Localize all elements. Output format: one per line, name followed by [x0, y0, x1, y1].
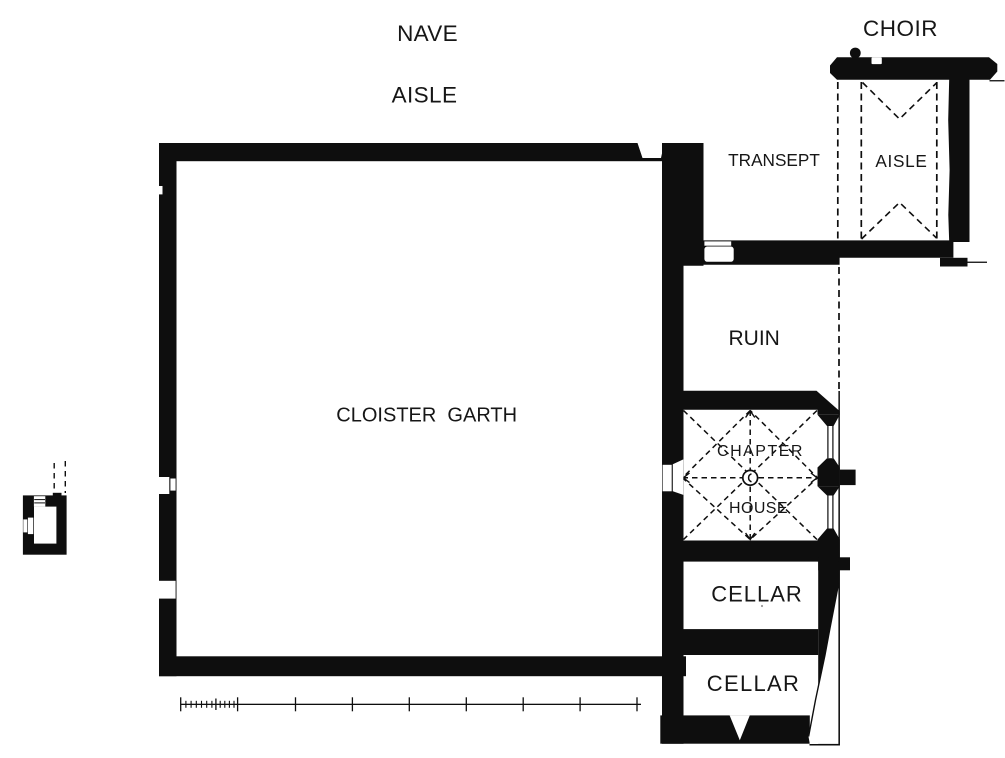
svg-text:NAVE: NAVE [397, 21, 458, 46]
svg-text:AISLE: AISLE [875, 151, 927, 171]
svg-text:CELLAR: CELLAR [707, 671, 800, 696]
svg-text:CHAPTER: CHAPTER [717, 443, 804, 460]
svg-text:CHOIR: CHOIR [863, 16, 938, 41]
svg-text:RUIN: RUIN [729, 327, 780, 350]
svg-text:HOUSE: HOUSE [729, 500, 788, 517]
svg-text:CLOISTER GARTH: CLOISTER GARTH [336, 405, 517, 427]
svg-text:TRANSEPT: TRANSEPT [728, 150, 820, 170]
svg-text:AISLE: AISLE [392, 83, 458, 108]
svg-text:CELLAR: CELLAR [711, 582, 803, 607]
